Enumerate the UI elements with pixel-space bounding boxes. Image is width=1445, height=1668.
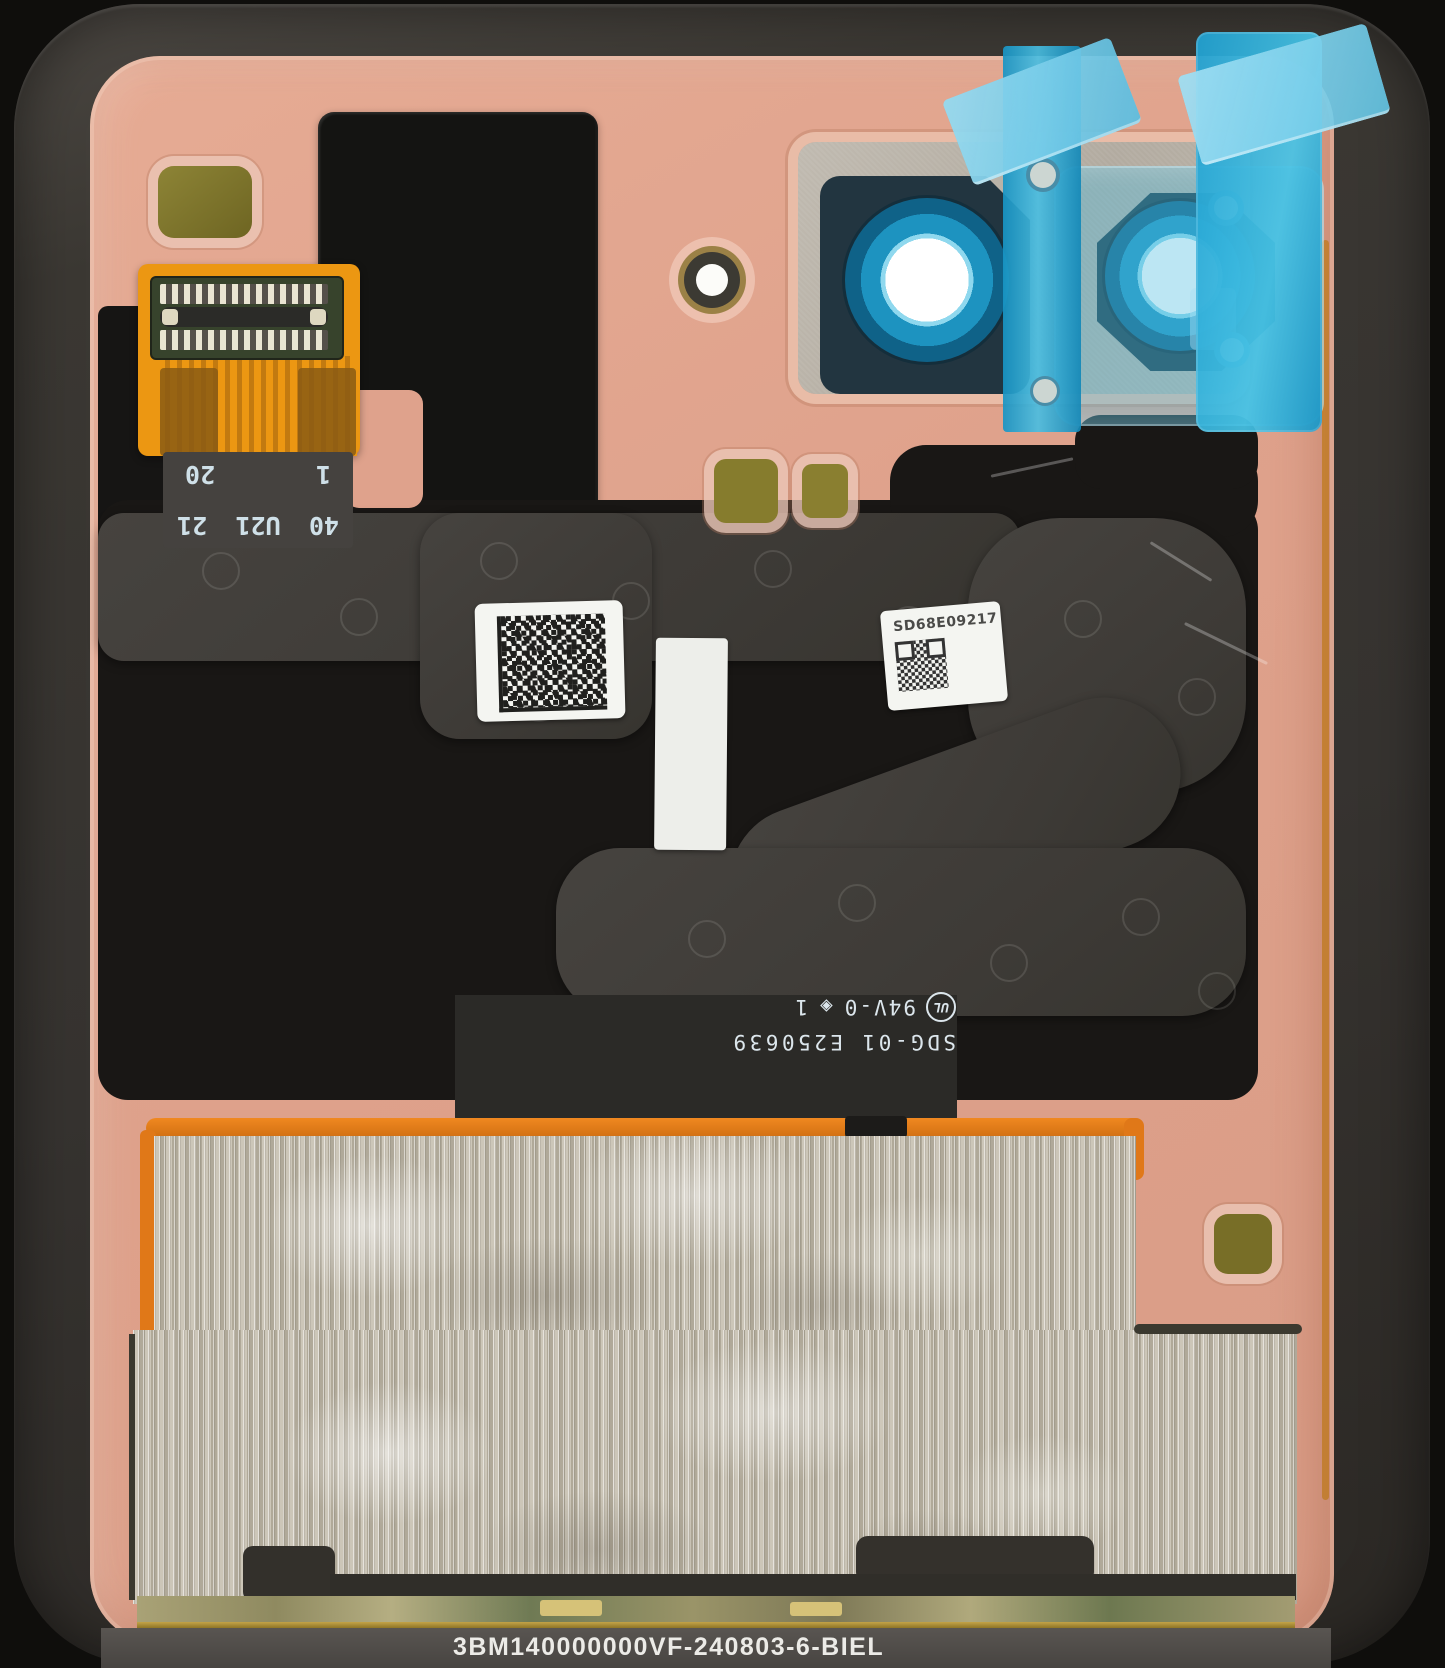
flammability-rating-text: 94V-0 [843,995,916,1019]
gold-contact-pad [158,166,252,238]
flex-dimple [838,884,876,922]
ul-certification-icon: UL [926,992,956,1022]
gold-contact-pad [714,459,778,523]
pin-number: 40 [309,511,339,540]
board-to-board-connector [150,276,344,360]
fpc-copper-pad [160,368,218,456]
pcb-edge-strip [137,1596,1295,1624]
gold-edge-tab [540,1600,602,1616]
diamond-mark-icon: ◈ [818,995,833,1019]
alignment-hole [678,246,746,314]
flex-dimple [1064,600,1102,638]
gold-edge-tab [790,1602,842,1616]
fpc-copper-pad [298,368,356,456]
connector-pin-row-top [160,284,328,304]
photo-phone-rear-cover-internal: 40 U21 21 1 20 SD68E09217 SDG-01 E250639… [0,0,1445,1668]
flex-dimple [202,552,240,590]
qr-finder-icon [925,638,946,659]
fpc-pin-row-2: 1 20 [177,460,339,489]
main-camera-lens [845,198,1009,362]
rating-suffix-text: 1 [793,995,808,1019]
serial-number-text: SD68E09217 [893,610,1002,635]
flex-dimple [1198,972,1236,1010]
pin-number: 1 [316,460,331,489]
connector-slot [160,307,328,327]
connector-designator: U21 [235,511,280,540]
flex-dimple [480,542,518,580]
data-matrix-code-icon [497,614,607,713]
white-sticker-strip [654,638,728,851]
foil-step-border [1134,1324,1302,1334]
flex-dimple [688,920,726,958]
pin-number: 21 [177,511,207,540]
fpc-pin-row-1: 40 U21 21 [177,511,339,540]
flex-silkscreen-print: SDG-01 E250639 UL 94V-0 ◈ 1 [712,966,956,1054]
flammability-marking: UL 94V-0 ◈ 1 [712,992,956,1022]
flex-dimple [1122,898,1160,936]
alignment-hole-core [696,264,728,296]
connector-pin-row-bottom [160,330,328,350]
gold-contact-pad [802,464,848,518]
datamatrix-label [474,600,625,722]
flex-dimple [340,598,378,636]
foil-left-border [129,1334,135,1600]
board-code-text: SDG-01 E250639 [712,1030,956,1054]
fpc-pin-numbering: 40 U21 21 1 20 [163,452,353,548]
film-hole [1030,376,1060,406]
part-number-text: 3BM140000000VF-240803-6-BIEL [453,1633,884,1662]
qr-finder-icon [895,641,916,662]
battery-border-orange-top [146,1118,1142,1138]
bottom-edge-bar: 3BM140000000VF-240803-6-BIEL [101,1628,1331,1668]
fpc-pin-numbering-rotated: 40 U21 21 1 20 [163,452,353,548]
flex-dimple [1178,678,1216,716]
felt-pad [243,1546,335,1602]
flex-dimple [990,944,1028,982]
foil-shield-upper [154,1136,1136,1336]
gold-contact-pad [1214,1214,1272,1274]
flex-dimple [754,550,792,588]
serial-label: SD68E09217 [880,601,1008,711]
pin-number: 20 [185,460,215,489]
black-tab-on-border [845,1116,907,1138]
frame-inner-orange-edge [1322,240,1329,1500]
connector-end-cap [162,309,178,325]
connector-end-cap [310,309,326,325]
